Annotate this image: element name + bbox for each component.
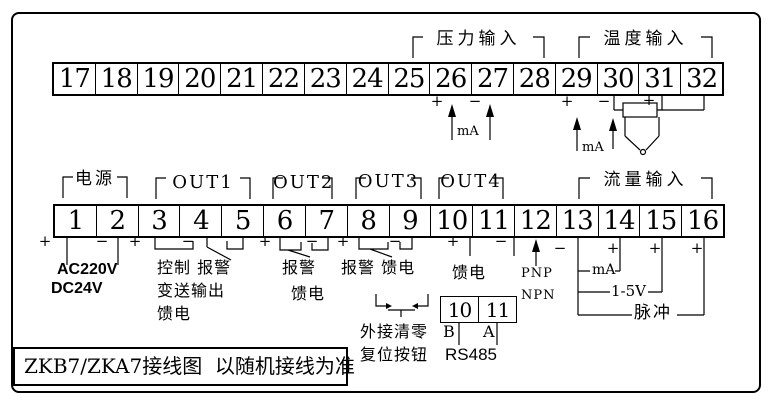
- out4-plus: +: [446, 233, 460, 250]
- reset-button-line2: 复位按钮: [360, 346, 428, 364]
- terminal-23: 23: [304, 64, 346, 94]
- power-minus: −: [95, 233, 109, 250]
- terminal-18: 18: [95, 64, 137, 94]
- flow-minus-13: −: [553, 240, 567, 257]
- terminal-17: 17: [54, 64, 95, 94]
- temperature-plus-29: +: [560, 93, 574, 110]
- out2-plus: +: [258, 233, 272, 250]
- out4-label: OUT4: [439, 172, 503, 193]
- terminal-14: 14: [598, 206, 640, 236]
- out2-desc-2: 馈电: [291, 285, 325, 303]
- rs485-terminal-box: 10 11: [440, 296, 517, 323]
- out1-desc-1: 控制 报警: [157, 259, 231, 277]
- flow-mode-pulse: 脉冲: [634, 304, 672, 324]
- wiring-diagram: 17 18 19 20 21 22 23 24 25 26 27 28 29 3…: [0, 0, 777, 407]
- terminal-31: 31: [638, 64, 680, 94]
- out3-plus: +: [336, 233, 350, 250]
- terminal-12: 12: [514, 206, 556, 236]
- temperature-ma-label: mA: [582, 141, 604, 156]
- terminal-22: 22: [262, 64, 304, 94]
- terminal-27: 27: [471, 64, 513, 94]
- out4-desc-1: 馈电: [452, 264, 486, 282]
- temperature-minus-30: −: [597, 93, 611, 110]
- terminal-20: 20: [178, 64, 220, 94]
- out4-minus: −: [494, 233, 508, 250]
- out1-minus: −: [181, 233, 195, 250]
- terminal-24: 24: [346, 64, 388, 94]
- terminal-21: 21: [220, 64, 262, 94]
- out1-plus: +: [128, 233, 142, 250]
- power-label: 电源: [63, 170, 127, 190]
- terminal-1: 1: [55, 206, 96, 236]
- flow-mode-voltage: 1-5V: [611, 283, 646, 300]
- terminal-32: 32: [680, 64, 722, 94]
- rs485-terminal-10: 10: [441, 297, 478, 322]
- top-terminal-row: 17 18 19 20 21 22 23 24 25 26 27 28 29 3…: [52, 62, 724, 96]
- power-supply-ac: AC220V: [57, 261, 117, 279]
- pressure-plus: +: [430, 93, 444, 110]
- flow-plus-16: +: [690, 240, 704, 257]
- terminal-28: 28: [513, 64, 555, 94]
- terminal-26: 26: [429, 64, 471, 94]
- out2-desc-1: 报警: [282, 259, 316, 277]
- flow-plus-15: +: [648, 240, 662, 257]
- sensor-type-pnp: PNP: [521, 267, 553, 282]
- flow-mode-ma: mA: [592, 262, 615, 278]
- rs485-label: RS485: [445, 345, 497, 365]
- rs485-a-label: A: [483, 323, 495, 341]
- out2-minus: −: [305, 233, 319, 250]
- out3-desc-1: 报警 馈电: [341, 259, 415, 277]
- terminal-5: 5: [221, 206, 263, 236]
- out2-label: OUT2: [273, 173, 332, 194]
- diagram-title-box: ZKB7/ZKA7接线图 以随机接线为准: [13, 347, 348, 386]
- terminal-16: 16: [681, 206, 723, 236]
- temperature-input-label: 温度输入: [579, 30, 712, 50]
- terminal-29: 29: [555, 64, 597, 94]
- terminal-13: 13: [556, 206, 598, 236]
- terminal-30: 30: [597, 64, 639, 94]
- terminal-19: 19: [137, 64, 179, 94]
- terminal-25: 25: [388, 64, 430, 94]
- rs485-b-label: B: [443, 323, 455, 341]
- power-plus: +: [38, 233, 52, 250]
- out1-desc-2: 变送输出: [157, 282, 225, 300]
- pressure-input-label: 压力输入: [413, 30, 544, 50]
- sensor-type-npn: NPN: [521, 289, 556, 304]
- out3-label: OUT3: [356, 172, 421, 193]
- temperature-plus-31: +: [642, 92, 656, 109]
- out1-label: OUT1: [156, 173, 250, 194]
- reset-button-line1: 外接清零: [360, 323, 428, 341]
- flow-plus-14: +: [606, 240, 620, 257]
- pressure-minus: −: [468, 93, 482, 110]
- terminal-3: 3: [138, 206, 180, 236]
- rs485-terminal-11: 11: [478, 297, 516, 322]
- pressure-ma-label: mA: [457, 125, 479, 140]
- power-supply-dc: DC24V: [51, 280, 103, 298]
- out3-minus: −: [388, 233, 402, 250]
- terminal-11: 11: [472, 206, 514, 236]
- flow-input-label: 流量输入: [579, 171, 712, 191]
- terminal-15: 15: [639, 206, 681, 236]
- out1-desc-3: 馈电: [157, 305, 191, 323]
- terminal-8: 8: [347, 206, 389, 236]
